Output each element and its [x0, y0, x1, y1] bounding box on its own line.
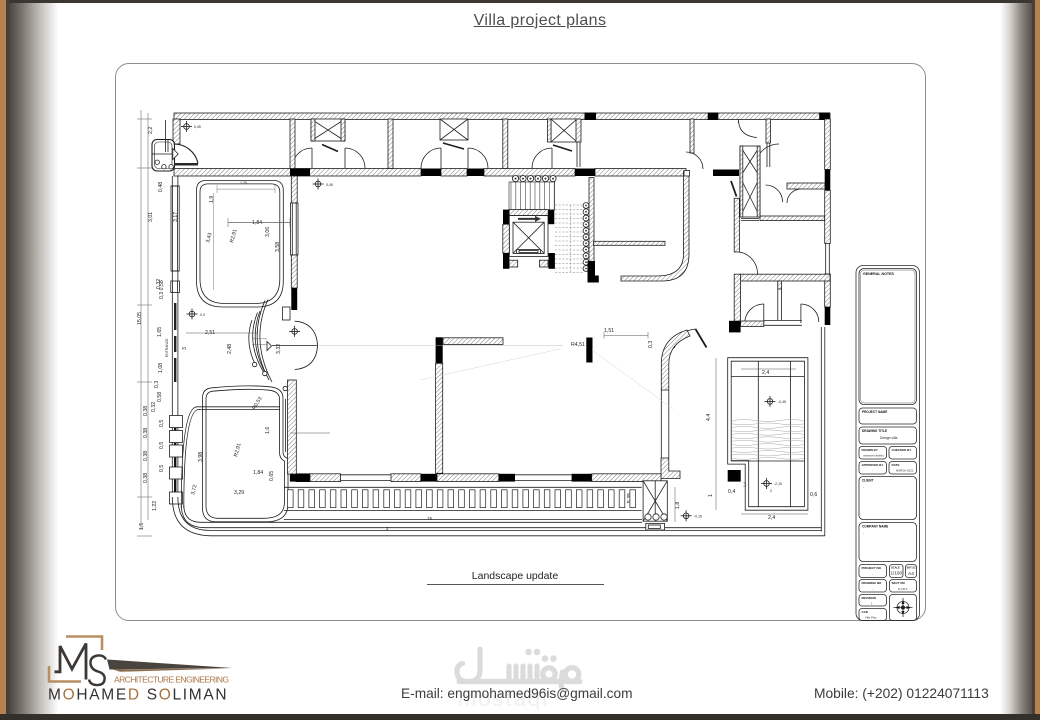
svg-text:0,58: 0,58: [157, 392, 163, 402]
svg-text:0,32: 0,32: [151, 402, 157, 412]
svg-text:REVISION: REVISION: [862, 596, 876, 600]
svg-text:3,01: 3,01: [148, 212, 154, 222]
svg-text:Villa Plan: Villa Plan: [865, 616, 877, 620]
svg-text:1,22: 1,22: [152, 501, 158, 511]
svg-text:mohamed ibrahim: mohamed ibrahim: [863, 454, 884, 458]
svg-text:-2,10: -2,10: [774, 482, 782, 486]
svg-text:ENTRANCE: ENTRANCE: [165, 338, 169, 357]
svg-text:0,38: 0,38: [143, 406, 149, 416]
svg-text:3,06: 3,06: [265, 227, 271, 237]
svg-text:3: 3: [182, 347, 188, 350]
svg-text:3,29: 3,29: [234, 490, 244, 496]
svg-text:0,38: 0,38: [143, 428, 149, 438]
svg-text:0,3: 0,3: [154, 381, 160, 388]
svg-text:1,8: 1,8: [675, 502, 681, 509]
svg-text:DRAWING NO: DRAWING NO: [862, 581, 882, 585]
svg-text:0,3: 0,3: [648, 341, 654, 348]
svg-text:0,48: 0,48: [158, 182, 164, 192]
svg-text:MARCH 2021: MARCH 2021: [896, 469, 914, 473]
svg-text:0,5: 0,5: [159, 442, 165, 449]
svg-text:0,6: 0,6: [810, 492, 817, 498]
svg-text:R0,53: R0,53: [252, 396, 264, 411]
svg-text:DATE: DATE: [892, 463, 900, 467]
svg-text:1,5: 1,5: [139, 523, 145, 530]
svg-text:A4: A4: [908, 571, 914, 577]
svg-text:-: -: [872, 587, 873, 591]
svg-text:R2,91: R2,91: [233, 442, 242, 457]
svg-text:-0,45: -0,45: [778, 400, 786, 404]
svg-text:1,65: 1,65: [157, 327, 163, 337]
svg-text:0,5: 0,5: [159, 465, 165, 472]
svg-text:0,45: 0,45: [194, 125, 201, 129]
svg-text:-: -: [872, 572, 873, 576]
svg-text:0,3 0,58: 0,3 0,58: [159, 280, 165, 299]
svg-text:1,51: 1,51: [604, 328, 614, 334]
svg-text:0,4: 0,4: [728, 489, 735, 495]
svg-text:2: 2: [770, 489, 772, 493]
svg-text:1/100: 1/100: [891, 571, 903, 576]
svg-text:15,05: 15,05: [137, 312, 143, 325]
svg-text:1,9: 1,9: [209, 196, 215, 203]
svg-text:CLIENT: CLIENT: [862, 479, 874, 483]
svg-text:1: 1: [708, 494, 714, 497]
svg-text:2,4: 2,4: [762, 370, 769, 376]
svg-text:D-CR 0: D-CR 0: [898, 587, 908, 591]
svg-text:3,32: 3,32: [276, 344, 282, 354]
svg-text:3,72: 3,72: [190, 484, 198, 495]
svg-text:2,48: 2,48: [227, 344, 233, 354]
svg-text:15: 15: [427, 516, 433, 521]
svg-text:1,6: 1,6: [265, 427, 271, 434]
svg-text:DRAWING TITLE: DRAWING TITLE: [862, 429, 887, 433]
svg-text:CHECKED BY: CHECKED BY: [892, 448, 912, 452]
svg-text:-: -: [886, 417, 887, 421]
svg-text:SECT NO: SECT NO: [892, 581, 906, 585]
svg-text:0,3: 0,3: [200, 313, 205, 317]
svg-text:3,17: 3,17: [173, 212, 179, 222]
svg-text:-: -: [872, 470, 873, 473]
svg-text:0,45: 0,45: [326, 183, 333, 187]
svg-text:0,65: 0,65: [269, 471, 275, 481]
svg-text:-: -: [863, 485, 864, 489]
svg-text:CAD: CAD: [862, 610, 869, 614]
svg-text:1: 1: [871, 602, 873, 606]
svg-text:SCALE: SCALE: [891, 566, 900, 570]
svg-text:3,98: 3,98: [198, 452, 204, 462]
svg-text:4,4: 4,4: [706, 414, 712, 421]
svg-text:PROJECT NAME: PROJECT NAME: [862, 410, 887, 414]
svg-text:PROJECT NO: PROJECT NO: [862, 566, 882, 570]
svg-text:2,4: 2,4: [768, 515, 775, 521]
svg-text:-0,15: -0,15: [694, 515, 702, 519]
svg-text:2,2: 2,2: [148, 127, 154, 134]
svg-text:1,84: 1,84: [253, 470, 263, 476]
svg-text:1,4: 1,4: [743, 482, 747, 487]
svg-text:Design villa: Design villa: [880, 436, 897, 440]
svg-text:R2,91: R2,91: [229, 228, 238, 243]
svg-text:R4,51: R4,51: [571, 342, 585, 348]
svg-text:COMPANY NAME: COMPANY NAME: [862, 525, 888, 529]
svg-text:1,25: 1,25: [240, 181, 247, 185]
svg-text:3,43: 3,43: [205, 232, 213, 243]
svg-text:0,5: 0,5: [159, 420, 165, 427]
svg-text:1,84: 1,84: [252, 220, 262, 226]
svg-text:-: -: [863, 531, 864, 535]
svg-text:SHT SZ: SHT SZ: [907, 566, 917, 570]
svg-text:DRAWN BY: DRAWN BY: [862, 448, 878, 452]
svg-text:3,58: 3,58: [275, 242, 281, 252]
svg-text:1,08: 1,08: [158, 363, 164, 373]
svg-text:0,38: 0,38: [143, 451, 149, 461]
svg-text:APPROVED BY: APPROVED BY: [862, 463, 884, 467]
svg-text:0,38: 0,38: [143, 473, 149, 483]
svg-text:-: -: [901, 455, 902, 458]
svg-text:GENERAL NOTES: GENERAL NOTES: [863, 272, 894, 276]
